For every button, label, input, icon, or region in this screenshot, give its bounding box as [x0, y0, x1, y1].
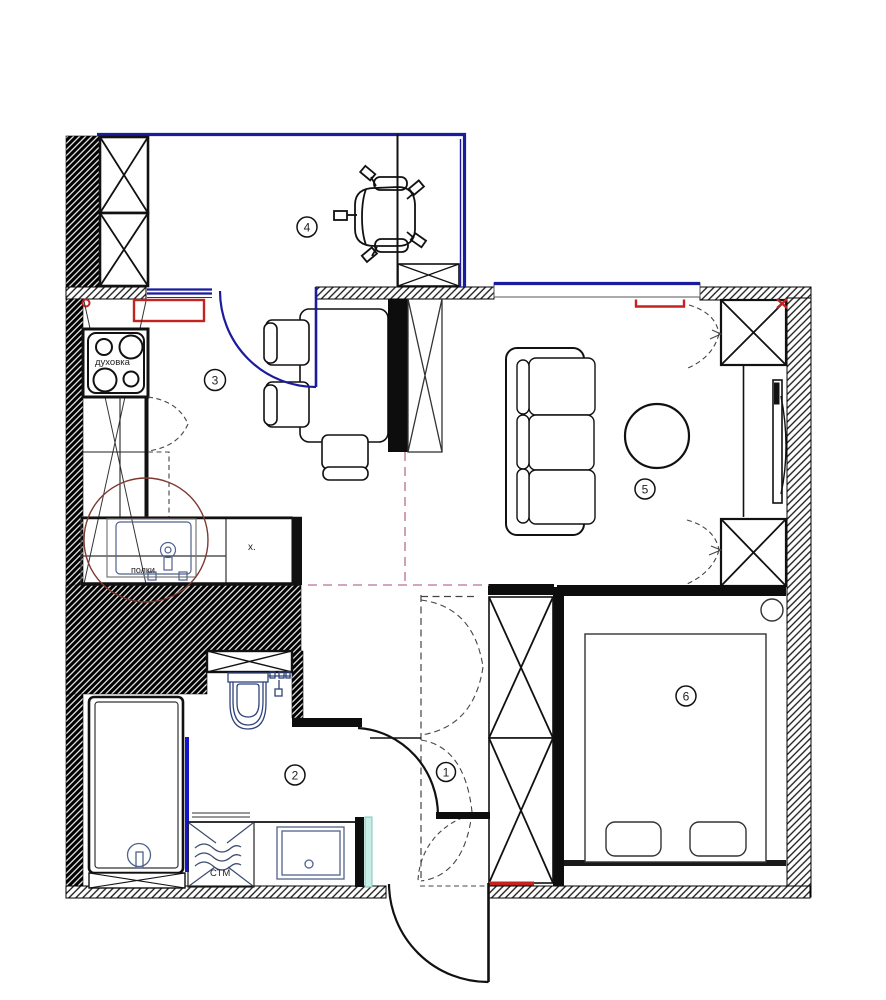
- svg-text:полки: полки: [131, 565, 155, 575]
- svg-text:духовка: духовка: [95, 357, 131, 368]
- svg-text:3: 3: [212, 374, 219, 388]
- svg-text:4: 4: [304, 221, 311, 235]
- svg-text:2: 2: [292, 769, 299, 783]
- svg-text:х.: х.: [248, 542, 256, 553]
- svg-text:5: 5: [642, 483, 649, 497]
- svg-text:6: 6: [683, 690, 690, 704]
- svg-text:СТМ: СТМ: [210, 868, 230, 879]
- svg-text:1: 1: [443, 766, 450, 780]
